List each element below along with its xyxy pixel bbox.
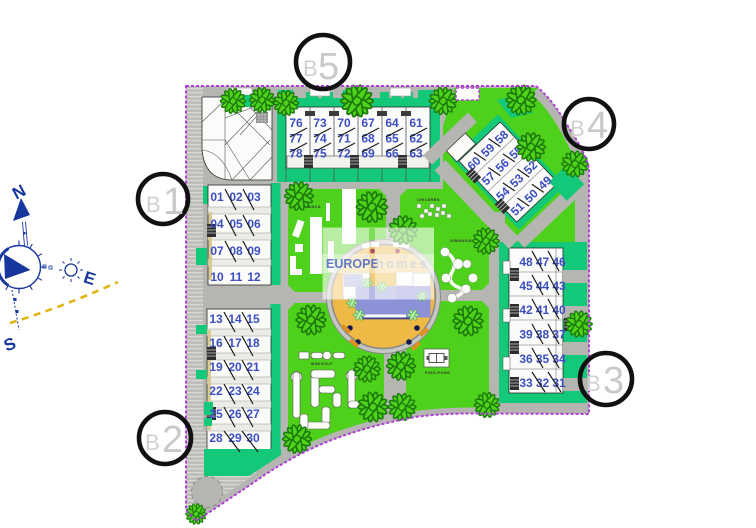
svg-text:45: 45	[519, 279, 533, 293]
svg-text:28: 28	[209, 431, 223, 445]
svg-text:61: 61	[409, 116, 423, 130]
svg-text:42: 42	[519, 303, 533, 317]
svg-text:11: 11	[230, 270, 243, 284]
svg-text:39: 39	[519, 328, 533, 342]
svg-text:E: E	[81, 268, 98, 290]
svg-text:08: 08	[229, 244, 243, 258]
svg-text:MINIGOLF: MINIGOLF	[311, 362, 333, 366]
svg-text:B: B	[586, 371, 601, 396]
svg-text:19: 19	[209, 360, 223, 374]
svg-text:10: 10	[210, 270, 224, 284]
svg-text:B: B	[145, 430, 160, 455]
svg-text:30: 30	[246, 431, 260, 445]
svg-text:B: B	[303, 56, 318, 81]
svg-text:05: 05	[229, 217, 243, 231]
svg-text:70: 70	[337, 116, 351, 130]
svg-text:13: 13	[209, 312, 223, 326]
svg-text:2: 2	[162, 419, 183, 461]
svg-text:09: 09	[247, 244, 261, 258]
svg-text:16: 16	[209, 336, 223, 350]
svg-text:5: 5	[318, 46, 339, 88]
svg-text:06: 06	[247, 217, 261, 231]
svg-text:64: 64	[385, 116, 399, 130]
svg-text:GIMNASIA: GIMNASIA	[450, 239, 472, 243]
svg-text:73: 73	[313, 116, 327, 130]
svg-text:12: 12	[247, 270, 261, 284]
svg-text:N: N	[9, 181, 29, 204]
svg-text:CHILDREN: CHILDREN	[417, 198, 440, 202]
svg-text:76: 76	[289, 116, 303, 130]
svg-text:22: 22	[209, 384, 223, 398]
svg-text:PING-PONG: PING-PONG	[425, 371, 450, 375]
svg-text:4: 4	[587, 105, 608, 147]
svg-text:29: 29	[228, 431, 242, 445]
svg-text:EUROPE: EUROPE	[326, 257, 379, 271]
svg-text:67: 67	[361, 116, 375, 130]
svg-text:07: 07	[210, 244, 224, 258]
svg-text:48: 48	[519, 255, 533, 269]
svg-text:1: 1	[163, 181, 184, 223]
svg-text:3: 3	[603, 360, 624, 402]
svg-text:31: 31	[552, 376, 566, 390]
svg-text:25: 25	[209, 407, 223, 421]
svg-text:04: 04	[210, 217, 224, 231]
svg-text:B: B	[570, 116, 585, 141]
svg-text:33: 33	[519, 376, 533, 390]
svg-text:S: S	[1, 334, 19, 356]
svg-text:36: 36	[519, 352, 533, 366]
svg-text:01: 01	[210, 190, 224, 204]
svg-text:homes: homes	[376, 257, 429, 271]
svg-text:B: B	[146, 192, 161, 217]
